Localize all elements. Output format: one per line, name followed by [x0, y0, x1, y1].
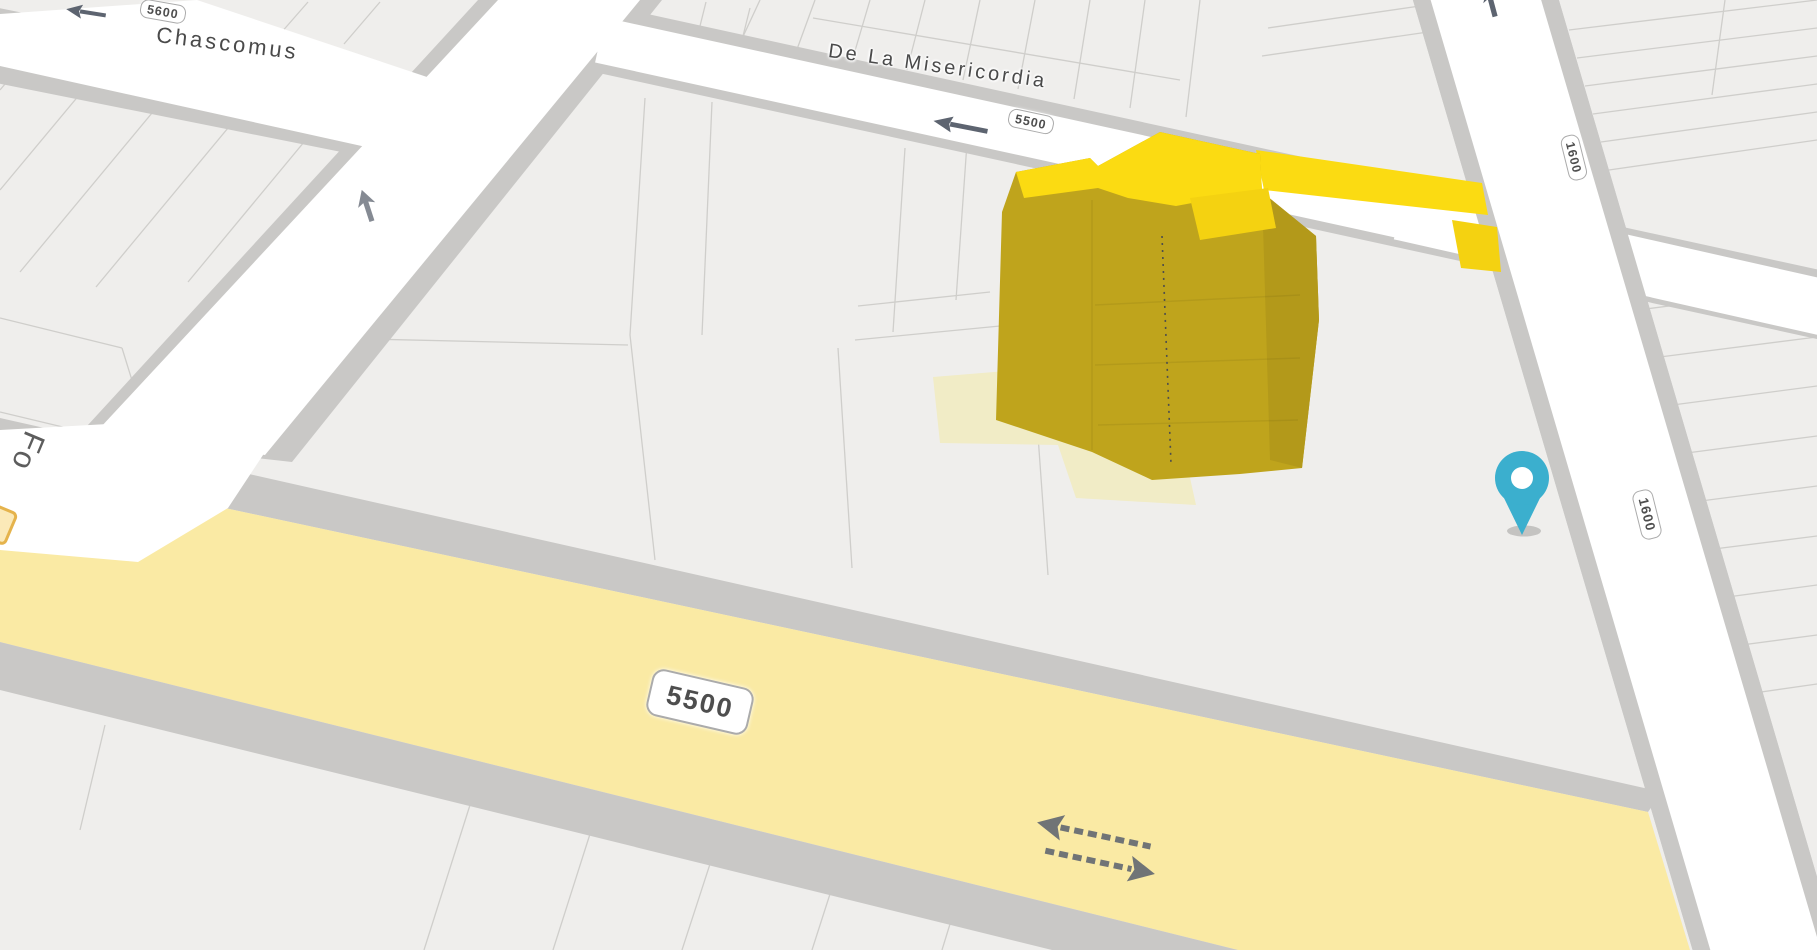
map-canvas[interactable]: Chascomus De La Misericordia Fo 5600 550…: [0, 0, 1817, 950]
map-3d-view[interactable]: [0, 0, 1817, 950]
pin-hole: [1511, 467, 1533, 489]
